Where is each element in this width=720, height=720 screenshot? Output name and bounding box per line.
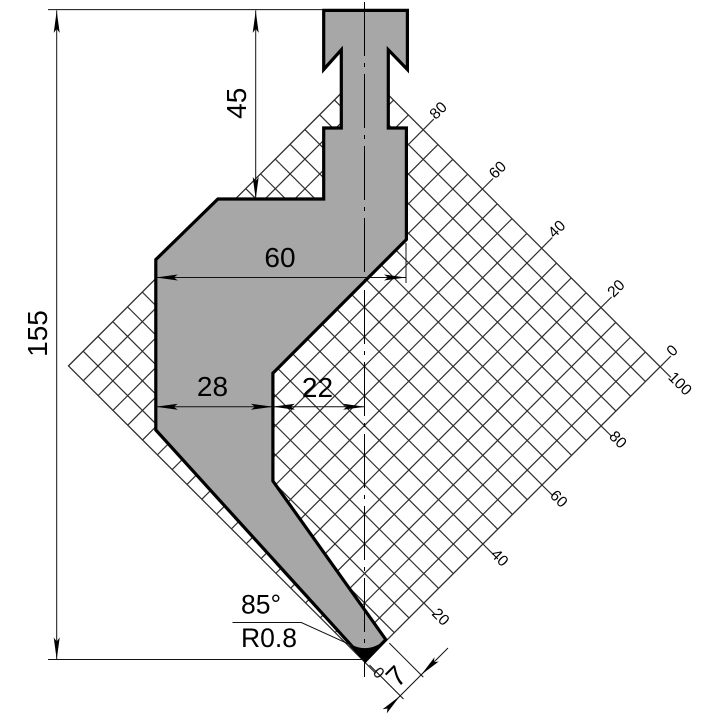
- svg-text:R0.8: R0.8: [241, 623, 297, 653]
- svg-text:28: 28: [197, 371, 228, 402]
- svg-text:155: 155: [22, 310, 53, 357]
- svg-text:22: 22: [302, 372, 333, 403]
- svg-text:45: 45: [221, 88, 252, 119]
- svg-text:60: 60: [264, 242, 295, 273]
- svg-text:85°: 85°: [241, 590, 281, 620]
